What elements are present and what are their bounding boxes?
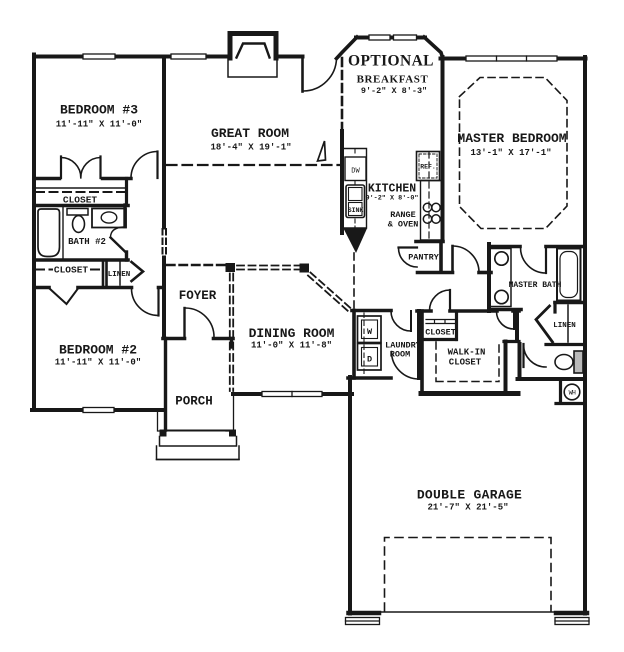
svg-text:W: W <box>367 327 373 337</box>
svg-text:CLOSET: CLOSET <box>54 265 89 276</box>
svg-text:PANTRY: PANTRY <box>408 253 440 263</box>
svg-text:SINK: SINK <box>348 207 364 214</box>
svg-text:11'-11" X 11'-0": 11'-11" X 11'-0" <box>56 120 142 130</box>
svg-text:DW: DW <box>351 168 360 176</box>
svg-text:BEDROOM #2: BEDROOM #2 <box>59 343 137 358</box>
svg-text:REF.: REF. <box>420 164 436 171</box>
svg-text:9'-2" X 8'-0": 9'-2" X 8'-0" <box>365 195 418 203</box>
svg-text:11'-0" X 11'-8": 11'-0" X 11'-8" <box>251 341 332 351</box>
svg-text:18'-4" X 19'-1": 18'-4" X 19'-1" <box>210 143 291 153</box>
svg-text:ROOM: ROOM <box>390 350 410 360</box>
svg-text:9'-2" X 8'-3": 9'-2" X 8'-3" <box>361 86 427 96</box>
svg-text:21'-7" X 21'-5": 21'-7" X 21'-5" <box>427 503 508 513</box>
svg-text:D: D <box>367 355 372 365</box>
svg-text:BEDROOM #3: BEDROOM #3 <box>60 103 138 118</box>
svg-text:CLOSET: CLOSET <box>449 358 482 368</box>
svg-text:PORCH: PORCH <box>175 395 213 409</box>
svg-text:& OVEN: & OVEN <box>388 220 419 230</box>
svg-text:LINEN: LINEN <box>108 271 131 279</box>
svg-text:DOUBLE GARAGE: DOUBLE GARAGE <box>417 488 522 503</box>
svg-text:FOYER: FOYER <box>179 289 217 303</box>
svg-text:DINING ROOM: DINING ROOM <box>249 326 335 341</box>
svg-text:11'-11" X 11'-0": 11'-11" X 11'-0" <box>55 358 141 368</box>
svg-text:BREAKFAST: BREAKFAST <box>357 74 429 86</box>
svg-text:GREAT ROOM: GREAT ROOM <box>211 126 289 141</box>
svg-text:BATH #2: BATH #2 <box>68 237 106 247</box>
svg-text:OPTIONAL: OPTIONAL <box>348 53 434 70</box>
svg-text:WALK-IN: WALK-IN <box>448 348 486 358</box>
svg-text:MASTER BEDROOM: MASTER BEDROOM <box>457 131 566 146</box>
svg-text:LINEN: LINEN <box>553 322 576 330</box>
svg-text:WH: WH <box>569 390 576 397</box>
svg-text:RANGE: RANGE <box>390 210 416 220</box>
svg-text:MASTER BATH: MASTER BATH <box>509 281 562 290</box>
svg-text:13'-1" X 17'-1": 13'-1" X 17'-1" <box>470 148 551 158</box>
svg-text:CLOSET: CLOSET <box>425 328 456 338</box>
